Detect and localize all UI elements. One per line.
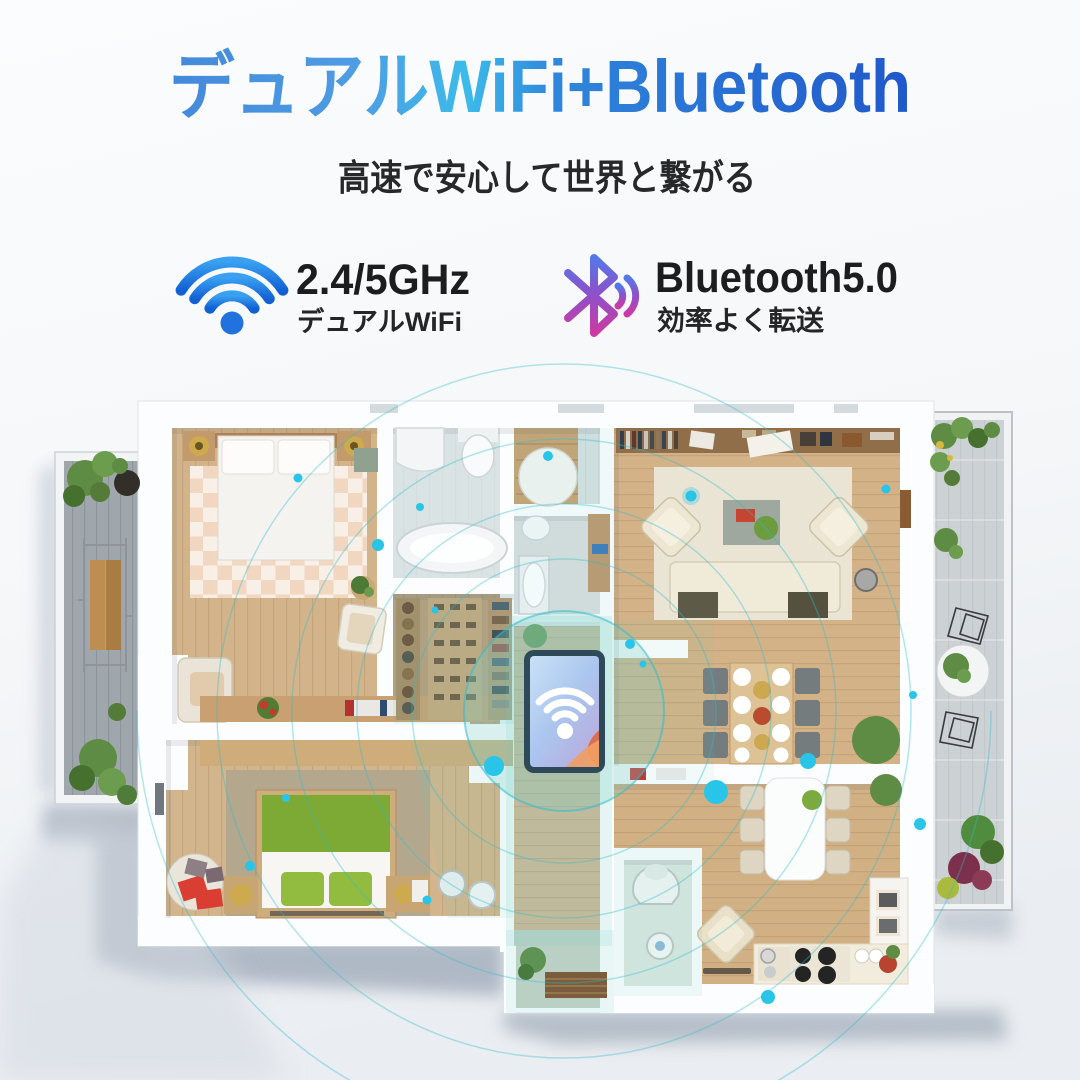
svg-text:Bluetooth5.0: Bluetooth5.0 [655,254,898,302]
svg-text:デュアルWiFi+Bluetooth: デュアルWiFi+Bluetooth [169,45,911,128]
svg-text:効率よく転送: 効率よく転送 [657,305,824,336]
svg-text:デュアルWiFi: デュアルWiFi [297,306,462,337]
svg-text:2.4/5GHz: 2.4/5GHz [296,256,470,304]
svg-text:高速で安心して世界と繋がる: 高速で安心して世界と繋がる [338,157,756,198]
